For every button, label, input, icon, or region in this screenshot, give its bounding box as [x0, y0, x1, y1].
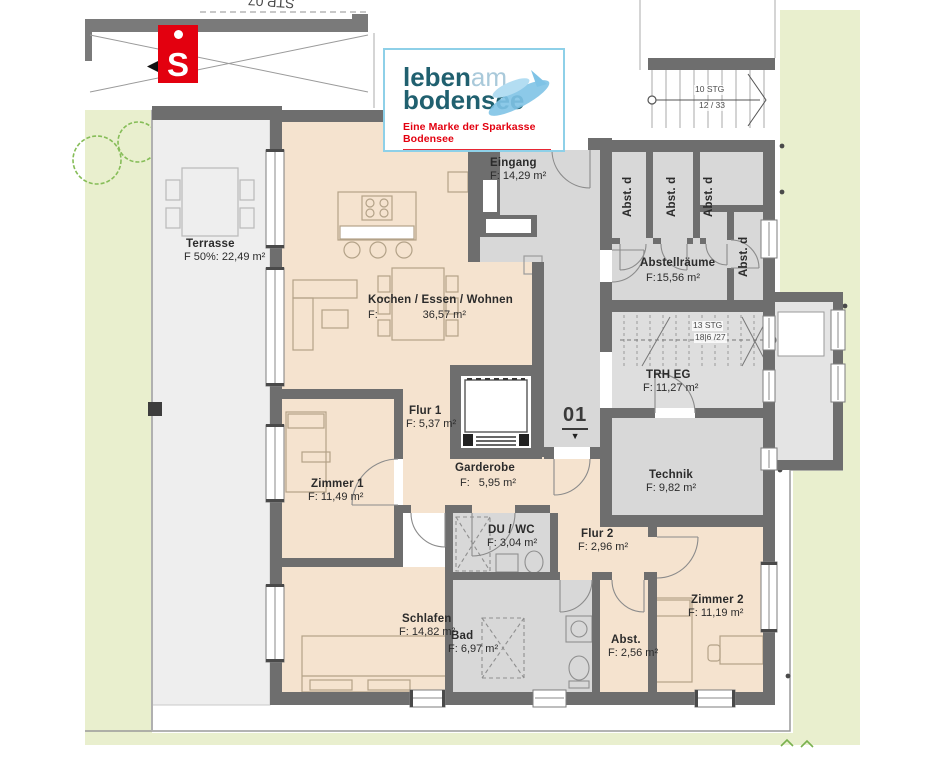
room-label-abst-d-4: Abst. d — [738, 215, 751, 277]
interior-stair-label-1: 13 STG — [692, 321, 723, 331]
brand-tagline: Eine Marke der Sparkasse Bodensee — [403, 121, 563, 145]
brand-rule — [403, 149, 551, 151]
room-label-abst-d-3: Abst. d — [703, 155, 716, 217]
elevator — [450, 365, 542, 459]
room-label-zimmer2: Zimmer 2 F: 11,19 m² — [691, 594, 744, 620]
room-label-flur1: Flur 1 F: 5,37 m² — [409, 405, 456, 431]
room-label-eingang: Eingang F: 14,29 m² — [490, 157, 546, 183]
room-label-trh: TRH EG F: 11,27 m² — [646, 369, 698, 395]
room-label-abst-d-2: Abst. d — [666, 155, 679, 217]
room-label-schlafen: Schlafen F: 14,82 m² — [402, 613, 455, 639]
room-label-zimmer1: Zimmer 1 F: 11,49 m² — [311, 478, 364, 504]
brand-brush-icon — [473, 58, 557, 122]
room-label-technik: Technik F: 9,82 m² — [649, 469, 696, 495]
room-label-flur2: Flur 2 F: 2,96 m² — [581, 528, 628, 554]
sparkasse-logo: S — [158, 25, 198, 83]
brand-card: lebenam bodensee Eine Marke der Sparkass… — [383, 48, 565, 152]
room-label-abst: Abst. F: 2,56 m² — [611, 634, 658, 660]
room-label-abstellraeume: Abstellräume F: 15,56 m² — [640, 257, 715, 285]
floorplan-page: S lebenam bodensee Eine Marke der Sparka… — [0, 0, 945, 757]
exterior-stair-label-1: 10 STG — [694, 85, 725, 95]
unit-entry-arrow-icon: ▼ — [562, 431, 588, 441]
room-label-garderobe: Garderobe F: 5,95 m² — [455, 462, 516, 490]
sparkasse-dot-icon — [174, 30, 183, 39]
terrace-area — [148, 110, 270, 731]
unit-marker: 01 ▼ — [562, 404, 588, 441]
north-arrow-icon — [147, 61, 158, 72]
room-label-terrasse: Terrasse F 50%: 22,49 m² — [186, 238, 265, 264]
exterior-stair-label-2: 12 / 33 — [698, 101, 726, 111]
neighbor-parking-label: STP 07 — [248, 0, 294, 12]
room-label-abst-d-1: Abst. d — [622, 155, 635, 217]
room-label-duwc: DU / WC F: 3,04 m² — [488, 524, 537, 550]
unit-number: 01 — [562, 404, 588, 430]
sparkasse-s-icon: S — [158, 47, 198, 83]
interior-stair-label-2: 18|6 /27 — [694, 333, 727, 343]
room-label-bad: Bad F: 6,97 m² — [451, 630, 498, 656]
room-label-kochen: Kochen / Essen / Wohnen F: 36,57 m² — [368, 294, 513, 322]
